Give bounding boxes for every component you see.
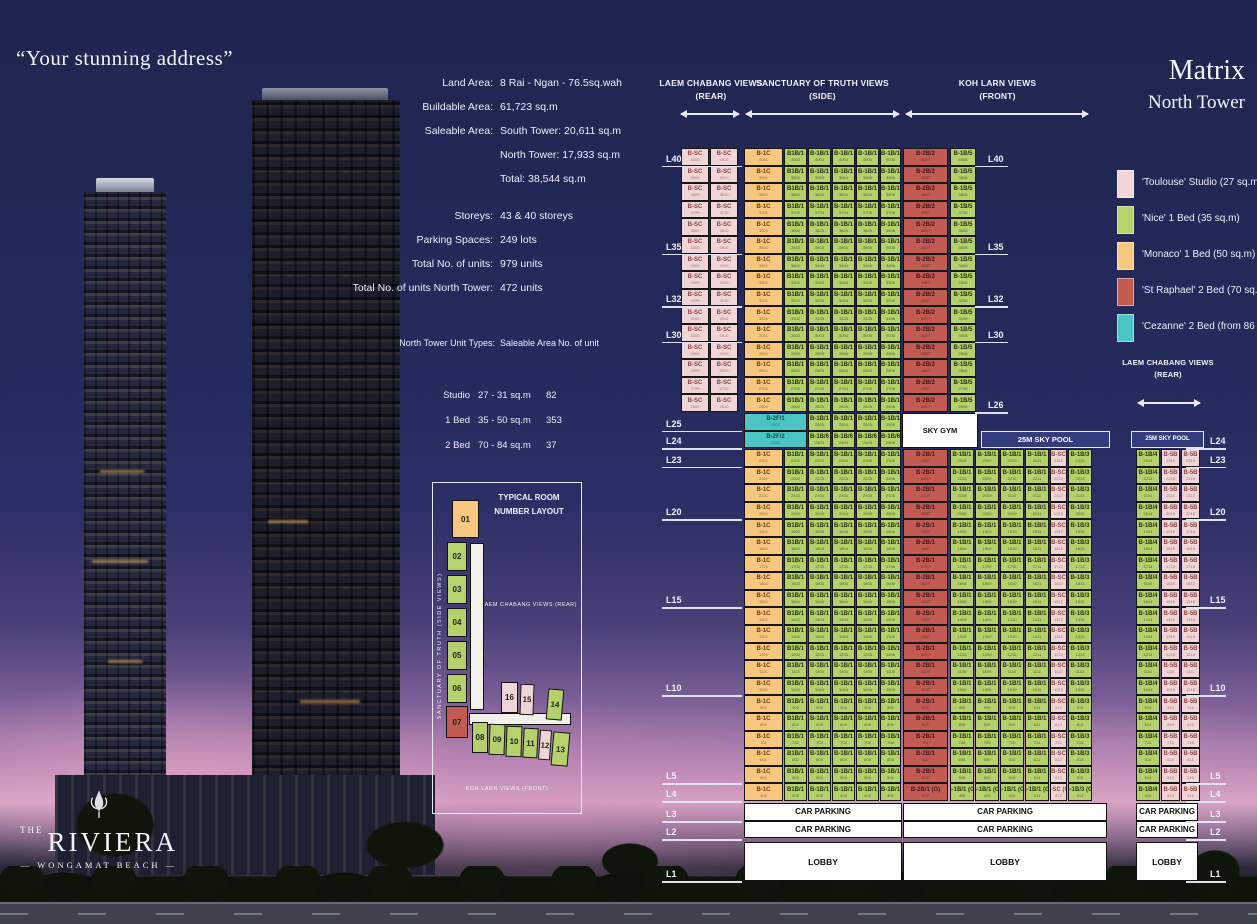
unit-cell: B1B/13002 [784,324,807,342]
unit-number: 411 [1034,794,1040,798]
unit-number: 2103 [815,494,824,498]
unit-number: 2004 [839,512,848,516]
unit-number: 410 [1009,794,1016,798]
unit-number: 701 [760,741,767,745]
unit-cell: B-1B/11804 [832,537,855,555]
unit-number: 3601 [759,229,768,233]
unit-number: 1304 [839,635,848,639]
unit-number: 1814 [1144,547,1153,551]
unit-number: 3801 [759,193,768,197]
unit-number: 2208 [958,477,967,481]
unit-cell: B-1B/11110 [1000,660,1024,678]
unit-number: 1006 [886,688,895,692]
unit-number: 3008 [959,334,968,338]
unit-cell: B-1B/11708 [950,555,974,573]
unit-number: 2602 [791,405,800,409]
unit-code: B-5B [1183,699,1197,705]
unit-code: B-1B/1 [881,257,900,263]
unit-number: 2013 [1076,512,1085,516]
unit-cell: B-1B/1611 [1025,748,1049,766]
details-label [328,149,500,166]
legend-label: 'Cezanne' 2 Bed (from 86 sq.m) [1142,321,1257,332]
unit-number: 706 [887,741,894,745]
unit-cell: B-1B/41214 [1136,643,1160,661]
unit-cell: B-1B/11006 [880,678,901,696]
unit-number: 1503 [815,600,824,604]
unit-cell: B1B/12602 [784,394,807,412]
unit-number: 2102 [791,494,800,498]
unit-cell: B-2B/23307 [903,271,948,289]
unit-code: B-1B/4 [1138,523,1157,529]
unit-code: B-1B/1 [1002,646,1021,652]
unit-cell: B-1B/11710 [1000,555,1024,573]
unit-code: B-1B/1 [977,523,996,529]
unit-cell: B-2B/23807 [903,183,948,201]
unit-cell: B-1B/12108 [950,484,974,502]
unit-cell: B-1B/12606 [880,394,901,412]
unit-number: 3301 [759,281,768,285]
unit-number: 1215 [1166,653,1175,657]
unit-number: 2401 [771,441,780,445]
unit-cell: B-1B/53908 [950,166,976,184]
unit-cell: B-2B/1707 [903,731,948,749]
unit-code: B-1B/1 [1027,523,1046,529]
unit-cell: B-1B/12105 [856,484,879,502]
unit-cell: B-1B/4514 [1136,766,1160,784]
unit-number: 1211 [1033,653,1042,657]
unit-cell: B-1B/52708 [950,377,976,395]
unit-code: B-SC [1051,699,1066,705]
unit-code: B-1B/1 [810,222,829,228]
unit-number: 3809 [691,193,700,197]
unit-cell: B-5B1815 [1161,537,1180,555]
details-row: Parking Spaces:249 lots [328,234,628,251]
unit-number: 1906 [886,530,895,534]
unit-number: 2116 [1186,494,1195,498]
unit-number: 1213 [1076,653,1085,657]
unit-number: 2203 [815,477,824,481]
unit-number: 1002 [791,688,800,692]
unit-number: 1916 [1186,530,1195,534]
unit-number: 807 [922,723,929,727]
unit-code: B-1B/1 [1002,611,1021,617]
unit-number: 605 [864,758,871,762]
unit-cell: B-1B/12009 [975,502,999,520]
unit-code: B-1B/5 [953,345,972,351]
unit-code: B-5B [1183,787,1197,793]
unit-cell: B-1B/31913 [1068,519,1092,537]
car-parking-bar: CAR PARKING [903,803,1107,821]
unit-cell: B-1B/11908 [950,519,974,537]
unit-number: 1009 [983,688,992,692]
unit-code: B-1B/4 [1138,611,1157,617]
unit-cell: B-1B/11903 [808,519,831,537]
unit-cell: B-1B/53308 [950,271,976,289]
unit-cell: B-SC712 [1050,731,1067,749]
unit-number: 1607 [921,582,930,586]
unit-cell: B-1B/12110 [1000,484,1024,502]
unit-number: 3109 [691,317,700,321]
unit-number: 1401 [759,618,768,622]
unit-code: B1B/1 [787,257,804,263]
unit-number: 1711 [1033,565,1042,569]
unit-cell: B-1B/13503 [808,236,831,254]
unit-number: 901 [760,706,767,710]
unit-number: 1114 [1144,670,1152,674]
unit-number: 512 [1055,776,1062,780]
unit-number: 1512 [1054,600,1063,604]
unit-cell: B-1B/1605 [856,748,879,766]
unit-number: 3908 [959,176,968,180]
unit-cell: B-1B/13803 [808,183,831,201]
unit-cell: B-SC612 [1050,748,1067,766]
unit-number: 1912 [1054,530,1063,534]
unit-cell: B-1B/41014 [1136,678,1160,696]
unit-code: B-SC [1051,734,1066,740]
unit-number: 3905 [863,176,872,180]
unit-number: 2006 [886,512,895,516]
floor-line [1186,821,1226,823]
unit-cell: B-SC3609 [681,218,709,236]
unit-cell: B-1C601 [744,748,783,766]
unit-number: 3208 [959,299,968,303]
unit-cell: B-1C2701 [744,377,783,395]
unit-number: 2008 [958,512,967,516]
unit-cell: B-2B/1 (G)407 [903,783,948,801]
unit-number: 2316 [1186,459,1195,463]
floor-label: L4 [666,789,677,799]
unit-cell: B-1C3501 [744,236,783,254]
unit-cell: B-1C801 [744,713,783,731]
unit-cell: B-SC1012 [1050,678,1067,696]
unit-number: 804 [840,723,847,727]
floor-label: L24 [666,436,682,446]
unit-code: B-2B/1 [916,611,935,617]
unit-number: 1901 [759,530,768,534]
unit-number: 2101 [759,494,768,498]
unit-number: 1813 [1076,547,1085,551]
unit-cell: B-1C1301 [744,625,783,643]
unit-code: B-SC [717,169,732,175]
car-parking-bar: CAR PARKING [1136,803,1198,821]
unit-number: 514 [1145,776,1152,780]
unit-cell: B-1B/13404 [832,254,855,272]
unit-cell: B-1B/52808 [950,359,976,377]
unit-number: 3207 [921,299,930,303]
unit-number: 1909 [983,530,992,534]
unit-number: 1716 [1186,565,1195,569]
unit-cell: B-SC3710 [710,201,738,219]
unit-number: 902 [792,706,799,710]
unit-cell: B-1B/11204 [832,643,855,661]
unit-type-name: Studio [395,390,470,401]
unit-code: B-1C [756,523,770,529]
unit-number: 3701 [759,211,768,215]
unit-code: B-2B/2 [916,310,935,316]
unit-code: B-1B/1 [834,558,853,564]
unit-cell: B-1B/11311 [1025,625,1049,643]
view-header-sub: (SIDE) [740,90,905,103]
unit-code: B-1B/1 [834,523,853,529]
unit-cell: B-SC2809 [681,359,709,377]
unit-number: 1501 [759,600,768,604]
unit-number: 3402 [791,264,800,268]
unit-cell: B-2B/11407 [903,607,948,625]
unit-number: 509 [984,776,991,780]
room-02: 02 [447,542,467,571]
unit-cell: B-5B2315 [1161,449,1180,467]
unit-cell: B-5B2116 [1181,484,1200,502]
unit-cell: B-1B/11906 [880,519,901,537]
unit-cell: B-5B1315 [1161,625,1180,643]
unit-cell: B-1B/41314 [1136,625,1160,643]
unit-cell: B-1B/1 (G)410 [1000,783,1024,801]
unit-number: 2501 [771,423,780,427]
unit-cell: B-5B1916 [1181,519,1200,537]
legend-swatch [1117,170,1134,198]
unit-number: 3702 [791,211,800,215]
unit-number: 712 [1055,741,1062,745]
unit-number: 3507 [921,246,930,250]
unit-cell: B-2B/24007 [903,148,948,166]
double-arrow-icon [746,113,899,115]
unit-cell: B-5B1115 [1161,660,1180,678]
unit-number: 3403 [815,264,824,268]
unit-cell: B-1B/52908 [950,342,976,360]
unit-code: B-5B [1163,646,1177,652]
unit-code: B-1B/1 [881,169,900,175]
unit-cell: B-1B/11809 [975,537,999,555]
typical-layout-rear-label: LAEM CHABANG VIEWS (REAR) [481,601,577,611]
unit-number: 2704 [839,387,848,391]
unit-cell: B-SC2112 [1050,484,1067,502]
unit-number: 907 [922,706,929,710]
tower-lights [108,660,142,663]
unit-number: 1404 [839,618,848,622]
unit-cell: B-1B/13004 [832,324,855,342]
unit-code: B-1B/1 [1002,470,1021,476]
unit-number: 2902 [791,352,800,356]
unit-cell: B-1B/12111 [1025,484,1049,502]
unit-number: 3901 [759,176,768,180]
unit-code: B-1B/1 [810,398,829,404]
car-parking-bar: CAR PARKING [744,821,902,839]
unit-cell: B-2B/22807 [903,359,948,377]
unit-cell: B-SC3010 [710,324,738,342]
unit-number: 1601 [759,582,768,586]
unit-number: 3803 [815,193,824,197]
unit-cell: B-1B/13005 [856,324,879,342]
unit-cell: B1B/11002 [784,678,807,696]
unit-code: B-1B/4 [1138,699,1157,705]
unit-cell: B-1B/11104 [832,660,855,678]
unit-cell: B-SC3409 [681,254,709,272]
details-row: Total: 38,544 sq.m [328,173,628,190]
unit-number: 1011 [1033,688,1042,692]
floor-label: L20 [666,507,682,517]
unit-cell: B-1B/31313 [1068,625,1092,643]
unit-code: B-1C [756,734,770,740]
unit-cell: B-SC1912 [1050,519,1067,537]
unit-number: 813 [1077,723,1084,727]
unit-number: 3902 [791,176,800,180]
unit-number: 1110 [1008,670,1016,674]
unit-cell: B-1B/4814 [1136,713,1160,731]
unit-code: B-5B [1183,646,1197,652]
unit-number: 2703 [815,387,824,391]
unit-cell: B1B/13102 [784,306,807,324]
unit-cell: B-1B/1803 [808,713,831,731]
unit-number: 2809 [691,369,700,373]
unit-cell: B1B/1702 [784,731,807,749]
details-row: Total No. of units North Tower:472 units [328,282,628,299]
details-row: Saleable Area:South Tower: 20,611 sq.m [328,125,628,142]
unit-number: 910 [1009,706,1016,710]
unit-code: B-1B/1 [834,787,853,793]
unit-cell: B-1B/4614 [1136,748,1160,766]
unit-cell: B-1B/11711 [1025,555,1049,573]
unit-cell: B-1B/3913 [1068,695,1092,713]
unit-number: 3110 [720,317,729,321]
car-parking-bar: CAR PARKING [744,803,902,821]
unit-number: 2605 [863,405,872,409]
sky-gym-bar: SKY GYM [902,413,978,448]
unit-cell: B-SC3910 [710,166,738,184]
unit-code: B-1B/1 [834,310,853,316]
lobby-bar: LOBBY [1136,842,1198,881]
unit-number: 1212 [1054,653,1063,657]
unit-cell: B1B/13302 [784,271,807,289]
room-05: 05 [447,641,467,670]
unit-cell: B-1B/62405 [856,431,879,449]
unit-code: B1B/1 [787,470,804,476]
unit-code: B-SC (G) [1050,787,1067,793]
unit-code: B-1B/3 [1070,646,1089,652]
unit-number: 1208 [958,653,967,657]
unit-number: 1709 [983,565,992,569]
unit-number: 2216 [1186,477,1195,481]
unit-cell: B-2B/23607 [903,218,948,236]
unit-cell: B-1B/12905 [856,342,879,360]
unit-cell: B-1B/11910 [1000,519,1024,537]
unit-number: 3203 [815,299,824,303]
unit-type-area: 70 - 84 sq.m [478,440,548,451]
unit-cell: B-1C2301 [744,449,783,467]
unit-code: B-2B/1 [916,558,935,564]
unit-code: B-1B/1 [1027,734,1046,740]
unit-number: 3007 [921,334,930,338]
unit-cell: B-SC3809 [681,183,709,201]
unit-number: 416 [1187,794,1194,798]
unit-number: 513 [1077,776,1084,780]
unit-code: B-SC [717,310,732,316]
unit-number: 715 [1167,741,1174,745]
unit-code: B-1B/1 [881,646,900,652]
unit-number: 3603 [815,229,824,233]
floor-label: L40 [988,154,1004,164]
unit-number: 2104 [839,494,848,498]
unit-cell: B1B/13402 [784,254,807,272]
unit-cell: B-1B/12310 [1000,449,1024,467]
unit-number: 1403 [815,618,824,622]
unit-cell: B-1B/53408 [950,254,976,272]
floor-line [1186,801,1226,803]
unit-cell: B-1B/53508 [950,236,976,254]
unit-cell: B-SC2610 [710,394,738,412]
unit-cell: B-1B/1804 [832,713,855,731]
unit-number: 3704 [839,211,848,215]
unit-code: B-1B/3 [1070,558,1089,564]
unit-number: 4007 [921,158,930,162]
unit-number: 2313 [1076,459,1085,463]
unit-cell: B-1B/12206 [880,467,901,485]
unit-number: 705 [864,741,871,745]
unit-number: 2009 [983,512,992,516]
unit-code: B-1B/1 [858,558,877,564]
unit-cell: B-1B/11909 [975,519,999,537]
unit-number: 408 [959,794,966,798]
unit-number: 1316 [1186,635,1195,639]
unit-code: B-1B/5 [953,257,972,263]
floor-label: L15 [666,595,682,605]
unit-cell: B-1B/13505 [856,236,879,254]
unit-number: 1306 [886,635,895,639]
unit-number: 3009 [691,334,700,338]
unit-cell: B-1B/12003 [808,502,831,520]
floor-line [975,254,1008,256]
unit-number: 2210 [1008,477,1017,481]
unit-cell: B-1B/11911 [1025,519,1049,537]
unit-cell: B-1B/13606 [880,218,901,236]
unit-number: 2901 [759,352,768,356]
floor-label: L3 [666,809,677,819]
unit-cell: B-1C1601 [744,572,783,590]
unit-cell: B-2B/23507 [903,236,948,254]
unit-number: 2010 [1008,512,1017,516]
unit-cell: B-1B/41714 [1136,555,1160,573]
unit-cell: B-1B/11205 [856,643,879,661]
unit-code: B-1B/1 [881,310,900,316]
details-value: 249 lots [500,234,628,251]
unit-number: 1808 [958,547,967,551]
unit-cell: B-1B/13405 [856,254,879,272]
floor-label: L25 [666,419,682,429]
unit-cell: B-2B/12007 [903,502,948,520]
unit-cell: B-1B/14006 [880,148,901,166]
unit-cell: B-1B/1609 [975,748,999,766]
unit-cell: B-1B/13504 [832,236,855,254]
unit-cell: B-1B/31213 [1068,643,1092,661]
unit-number: 702 [792,741,799,745]
unit-cell: B-5B715 [1161,731,1180,749]
unit-cell: B-2B/11907 [903,519,948,537]
unit-cell: B-SC3110 [710,306,738,324]
unit-number: 615 [1167,758,1174,762]
floor-line [662,821,742,823]
unit-number: 2609 [691,405,700,409]
unit-cell: B-1B/12309 [975,449,999,467]
unit-cell: B-SC1112 [1050,660,1067,678]
unit-cell: B-1B/1710 [1000,731,1024,749]
unit-code: B-1B/4 [1138,646,1157,652]
unit-code: B-1B/1 [881,470,900,476]
unit-number: 3706 [886,211,895,215]
unit-number: 801 [760,723,767,727]
unit-number: 3408 [959,264,968,268]
unit-cell: B-1B/12505 [856,413,879,431]
unit-number: 3608 [959,229,968,233]
legend-swatch [1117,206,1134,234]
